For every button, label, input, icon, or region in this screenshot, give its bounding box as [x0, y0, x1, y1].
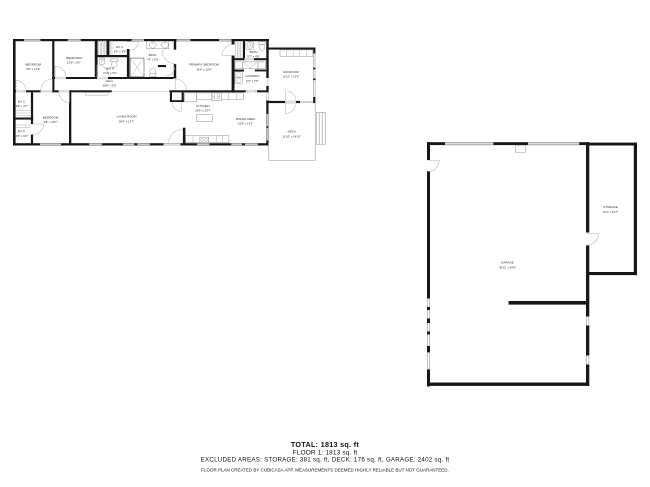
svg-text:6'2" x 7'8": 6'2" x 7'8" — [246, 79, 258, 83]
svg-text:BATH: BATH — [250, 50, 258, 54]
svg-text:PRIMARY BEDROOM: PRIMARY BEDROOM — [189, 63, 219, 67]
svg-text:4'5" x 6'2": 4'5" x 6'2" — [16, 134, 28, 138]
svg-text:HALL: HALL — [106, 79, 114, 83]
svg-text:11'10" x 14'10": 11'10" x 14'10" — [283, 134, 302, 138]
svg-text:11'6" x 32'7": 11'6" x 32'7" — [603, 210, 618, 214]
svg-text:5'7" x 4'9": 5'7" x 4'9" — [247, 55, 259, 59]
svg-text:4'5" x 4'7": 4'5" x 4'7" — [16, 104, 28, 108]
svg-text:BEDROOM: BEDROOM — [66, 56, 82, 60]
svg-text:11'10" x 13'4": 11'10" x 13'4" — [283, 75, 300, 79]
svg-text:STORAGE: STORAGE — [603, 205, 618, 209]
svg-text:FLOOR PLAN CREATED BY CUBICASA: FLOOR PLAN CREATED BY CUBICASA APP. MEAS… — [201, 468, 448, 473]
svg-text:14'4" x 12'6": 14'4" x 12'6" — [196, 67, 212, 71]
svg-text:5'6" x 3'9": 5'6" x 3'9" — [114, 50, 126, 54]
svg-text:36'11" x 34'9": 36'11" x 34'9" — [499, 265, 516, 269]
svg-text:LIVING ROOM: LIVING ROOM — [116, 115, 137, 119]
svg-text:BEDROOM: BEDROOM — [26, 62, 42, 66]
svg-text:13'6" x 13'7": 13'6" x 13'7" — [195, 109, 211, 113]
svg-text:13'9" x 9'2": 13'9" x 9'2" — [67, 61, 81, 65]
svg-text:7'10" x 5'1": 7'10" x 5'1" — [103, 71, 117, 75]
svg-text:KITCHEN: KITCHEN — [196, 104, 209, 108]
svg-text:9'8" x 10'7": 9'8" x 10'7" — [44, 120, 58, 124]
svg-text:BATH: BATH — [106, 67, 114, 71]
svg-text:9'8" x 12'6": 9'8" x 12'6" — [26, 67, 40, 71]
svg-text:SUNROOM: SUNROOM — [283, 70, 299, 74]
svg-text:DINING AREA: DINING AREA — [236, 117, 255, 121]
svg-text:LAUNDRY: LAUNDRY — [245, 74, 259, 78]
svg-text:TOTAL: 1813 sq. ft: TOTAL: 1813 sq. ft — [291, 440, 360, 449]
svg-text:13'9" x 13'7": 13'9" x 13'7" — [238, 122, 254, 126]
svg-text:28'4" x 13'7": 28'4" x 13'7" — [119, 119, 135, 123]
svg-text:DECK: DECK — [288, 130, 296, 134]
svg-text:W.I.C.: W.I.C. — [18, 129, 26, 133]
svg-text:W.I.C.: W.I.C. — [18, 99, 26, 103]
svg-text:GARAGE: GARAGE — [501, 261, 514, 265]
svg-text:20'8" x 3'9": 20'8" x 3'9" — [102, 84, 116, 88]
svg-text:EXCLUDED AREAS: STORAGE: 381 s: EXCLUDED AREAS: STORAGE: 381 sq. ft, DEC… — [201, 456, 450, 463]
svg-text:7'4" x 5'9": 7'4" x 5'9" — [146, 58, 158, 62]
svg-text:BEDROOM: BEDROOM — [43, 115, 59, 119]
svg-text:BATH: BATH — [149, 53, 157, 57]
svg-text:W.I.C.: W.I.C. — [116, 45, 124, 49]
